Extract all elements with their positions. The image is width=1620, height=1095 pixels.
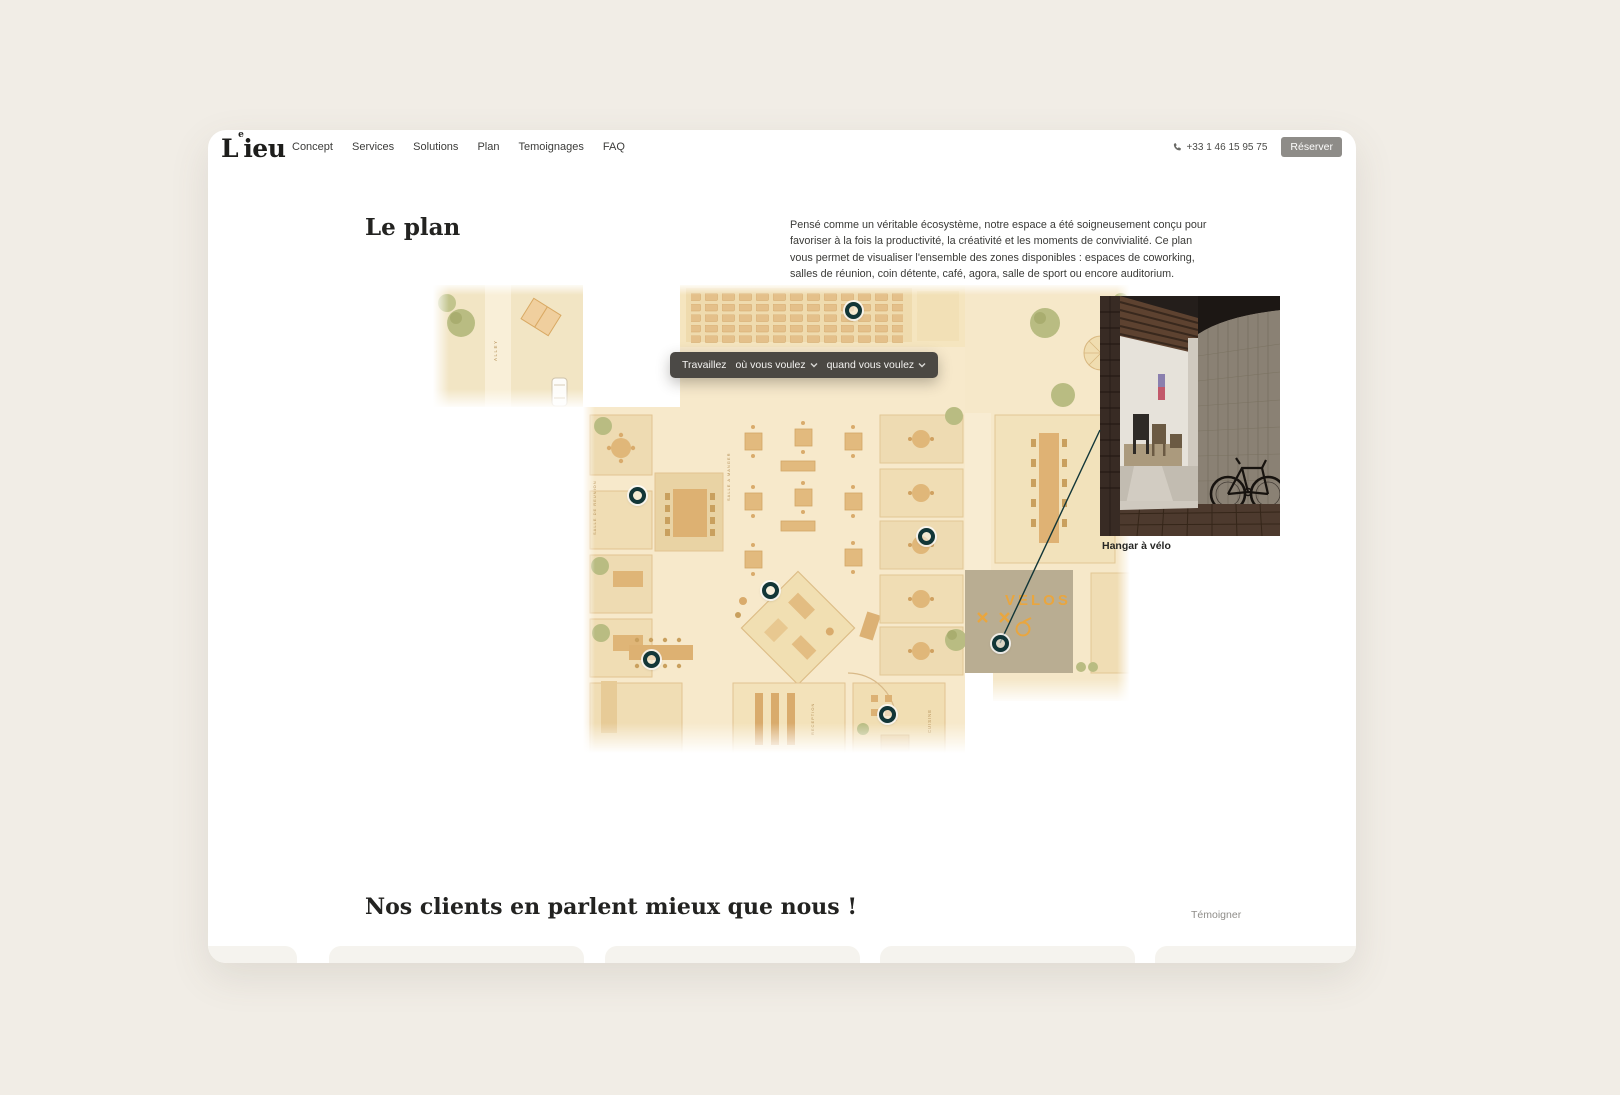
phone-link[interactable]: +33 1 46 15 95 75 — [1172, 142, 1267, 153]
testimonials-title: Nos clients en parlent mieux que nous ! — [365, 894, 857, 920]
logo-l: L — [221, 134, 238, 163]
nav-item-concept[interactable]: Concept — [292, 141, 333, 153]
auditorium-seats — [691, 291, 903, 343]
plan-marker[interactable] — [879, 706, 896, 723]
logo-rest: ieu — [243, 134, 285, 163]
testimonial-card[interactable] — [208, 946, 297, 963]
temoigner-link[interactable]: Témoigner — [1191, 909, 1241, 921]
header-right: +33 1 46 15 95 75 Réserver — [1172, 130, 1342, 164]
tooltip-prefix: Travaillez — [682, 359, 727, 371]
plan-tooltip: Travaillez où vous voulez quand vous vou… — [670, 352, 938, 378]
plan-marker[interactable] — [918, 528, 935, 545]
nav-item-plan[interactable]: Plan — [477, 141, 499, 153]
testimonial-card[interactable] — [880, 946, 1135, 963]
logo[interactable]: Leieu — [221, 134, 285, 163]
when-dropdown[interactable]: quand vous voulez — [827, 359, 927, 371]
phone-number: +33 1 46 15 95 75 — [1186, 142, 1267, 153]
plan-marker[interactable] — [992, 635, 1009, 652]
chevron-down-icon — [918, 362, 926, 368]
desktop-background: { "window": { "outer_bg": "#f1ede6", "ca… — [0, 0, 1620, 1095]
when-dropdown-label: quand vous voulez — [827, 359, 915, 371]
reserve-button[interactable]: Réserver — [1281, 137, 1342, 157]
plan-marker[interactable] — [845, 302, 862, 319]
main-nav: Concept Services Solutions Plan Temoigna… — [292, 130, 625, 164]
hangar-velo-photo — [1100, 296, 1280, 536]
plan-section-title: Le plan — [365, 214, 460, 241]
plan-marker[interactable] — [762, 582, 779, 599]
plan-description: Pensé comme un véritable écosystème, not… — [790, 217, 1208, 283]
testimonial-card[interactable] — [1155, 946, 1356, 963]
label-salle-manger: SALLE A MANGER — [726, 453, 731, 501]
photo-caption: Hangar à vélo — [1102, 540, 1171, 552]
logo-sup: e — [238, 130, 243, 140]
nav-item-solutions[interactable]: Solutions — [413, 141, 458, 153]
testimonial-card[interactable] — [329, 946, 584, 963]
testimonial-card[interactable] — [605, 946, 860, 963]
plan-marker[interactable] — [629, 487, 646, 504]
nav-item-services[interactable]: Services — [352, 141, 394, 153]
phone-icon — [1172, 142, 1182, 152]
label-alley: ALLEY — [493, 339, 498, 361]
plan-marker[interactable] — [643, 651, 660, 668]
site-window: Leieu Concept Services Solutions Plan Te… — [208, 130, 1356, 963]
site-header: Leieu Concept Services Solutions Plan Te… — [208, 130, 1356, 170]
where-dropdown-label: où vous voulez — [736, 359, 806, 371]
nav-item-temoignages[interactable]: Temoignages — [518, 141, 583, 153]
where-dropdown[interactable]: où vous voulez — [736, 359, 818, 371]
nav-item-faq[interactable]: FAQ — [603, 141, 625, 153]
label-velos: VELOS — [1005, 592, 1071, 609]
chevron-down-icon — [810, 362, 818, 368]
